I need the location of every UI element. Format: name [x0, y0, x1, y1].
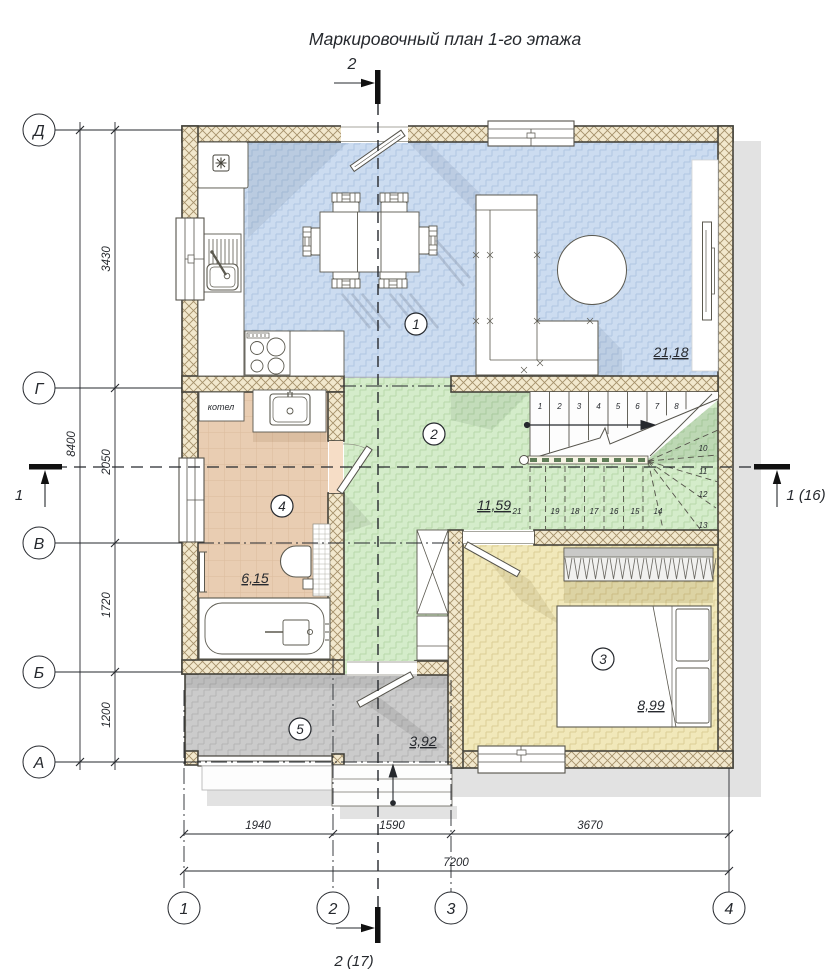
- svg-text:12: 12: [699, 490, 708, 499]
- svg-text:3,92: 3,92: [409, 733, 436, 749]
- svg-text:3670: 3670: [577, 820, 603, 832]
- svg-text:8400: 8400: [66, 431, 78, 457]
- svg-text:18: 18: [571, 507, 580, 516]
- svg-text:1940: 1940: [245, 820, 271, 832]
- svg-text:1: 1: [15, 487, 23, 504]
- svg-text:1590: 1590: [379, 820, 405, 832]
- svg-text:3: 3: [577, 402, 582, 411]
- svg-text:17: 17: [590, 507, 599, 516]
- svg-text:4: 4: [725, 901, 734, 918]
- svg-text:14: 14: [654, 507, 663, 516]
- svg-text:1 (16): 1 (16): [786, 487, 825, 504]
- svg-text:5: 5: [296, 722, 304, 737]
- svg-text:4: 4: [278, 499, 286, 514]
- svg-text:3: 3: [599, 652, 607, 667]
- svg-text:Г: Г: [35, 381, 45, 398]
- svg-text:21,18: 21,18: [652, 344, 688, 360]
- svg-text:1: 1: [180, 901, 189, 918]
- svg-text:2: 2: [328, 901, 338, 918]
- svg-text:7: 7: [655, 402, 660, 411]
- svg-text:6,15: 6,15: [241, 570, 268, 586]
- svg-text:3430: 3430: [101, 246, 113, 272]
- svg-text:6: 6: [635, 402, 640, 411]
- svg-text:2050: 2050: [101, 449, 113, 476]
- svg-text:15: 15: [631, 507, 640, 516]
- svg-text:1: 1: [412, 317, 420, 332]
- svg-text:2 (17): 2 (17): [333, 953, 373, 970]
- svg-text:1: 1: [538, 402, 542, 411]
- svg-text:Д: Д: [31, 123, 44, 140]
- svg-text:11,59: 11,59: [477, 497, 511, 513]
- svg-text:8: 8: [674, 402, 679, 411]
- svg-text:1200: 1200: [101, 702, 113, 728]
- svg-text:10: 10: [699, 444, 708, 453]
- svg-text:2: 2: [556, 402, 562, 411]
- svg-text:19: 19: [551, 507, 560, 516]
- svg-text:5: 5: [616, 402, 621, 411]
- svg-text:котел: котел: [208, 402, 235, 412]
- svg-text:13: 13: [699, 521, 708, 530]
- svg-text:16: 16: [610, 507, 619, 516]
- svg-text:3: 3: [447, 901, 456, 918]
- svg-text:11: 11: [699, 467, 707, 476]
- svg-text:А: А: [33, 755, 45, 772]
- svg-text:В: В: [34, 536, 45, 553]
- svg-text:21: 21: [512, 507, 522, 516]
- svg-text:4: 4: [596, 402, 601, 411]
- svg-text:7200: 7200: [443, 857, 469, 869]
- svg-text:1720: 1720: [101, 592, 113, 618]
- svg-text:2: 2: [429, 427, 438, 442]
- svg-text:8,99: 8,99: [637, 697, 664, 713]
- svg-text:Б: Б: [34, 665, 44, 682]
- svg-text:2: 2: [347, 56, 357, 73]
- svg-text:Маркировочный план 1-го этажа: Маркировочный план 1-го этажа: [309, 29, 582, 49]
